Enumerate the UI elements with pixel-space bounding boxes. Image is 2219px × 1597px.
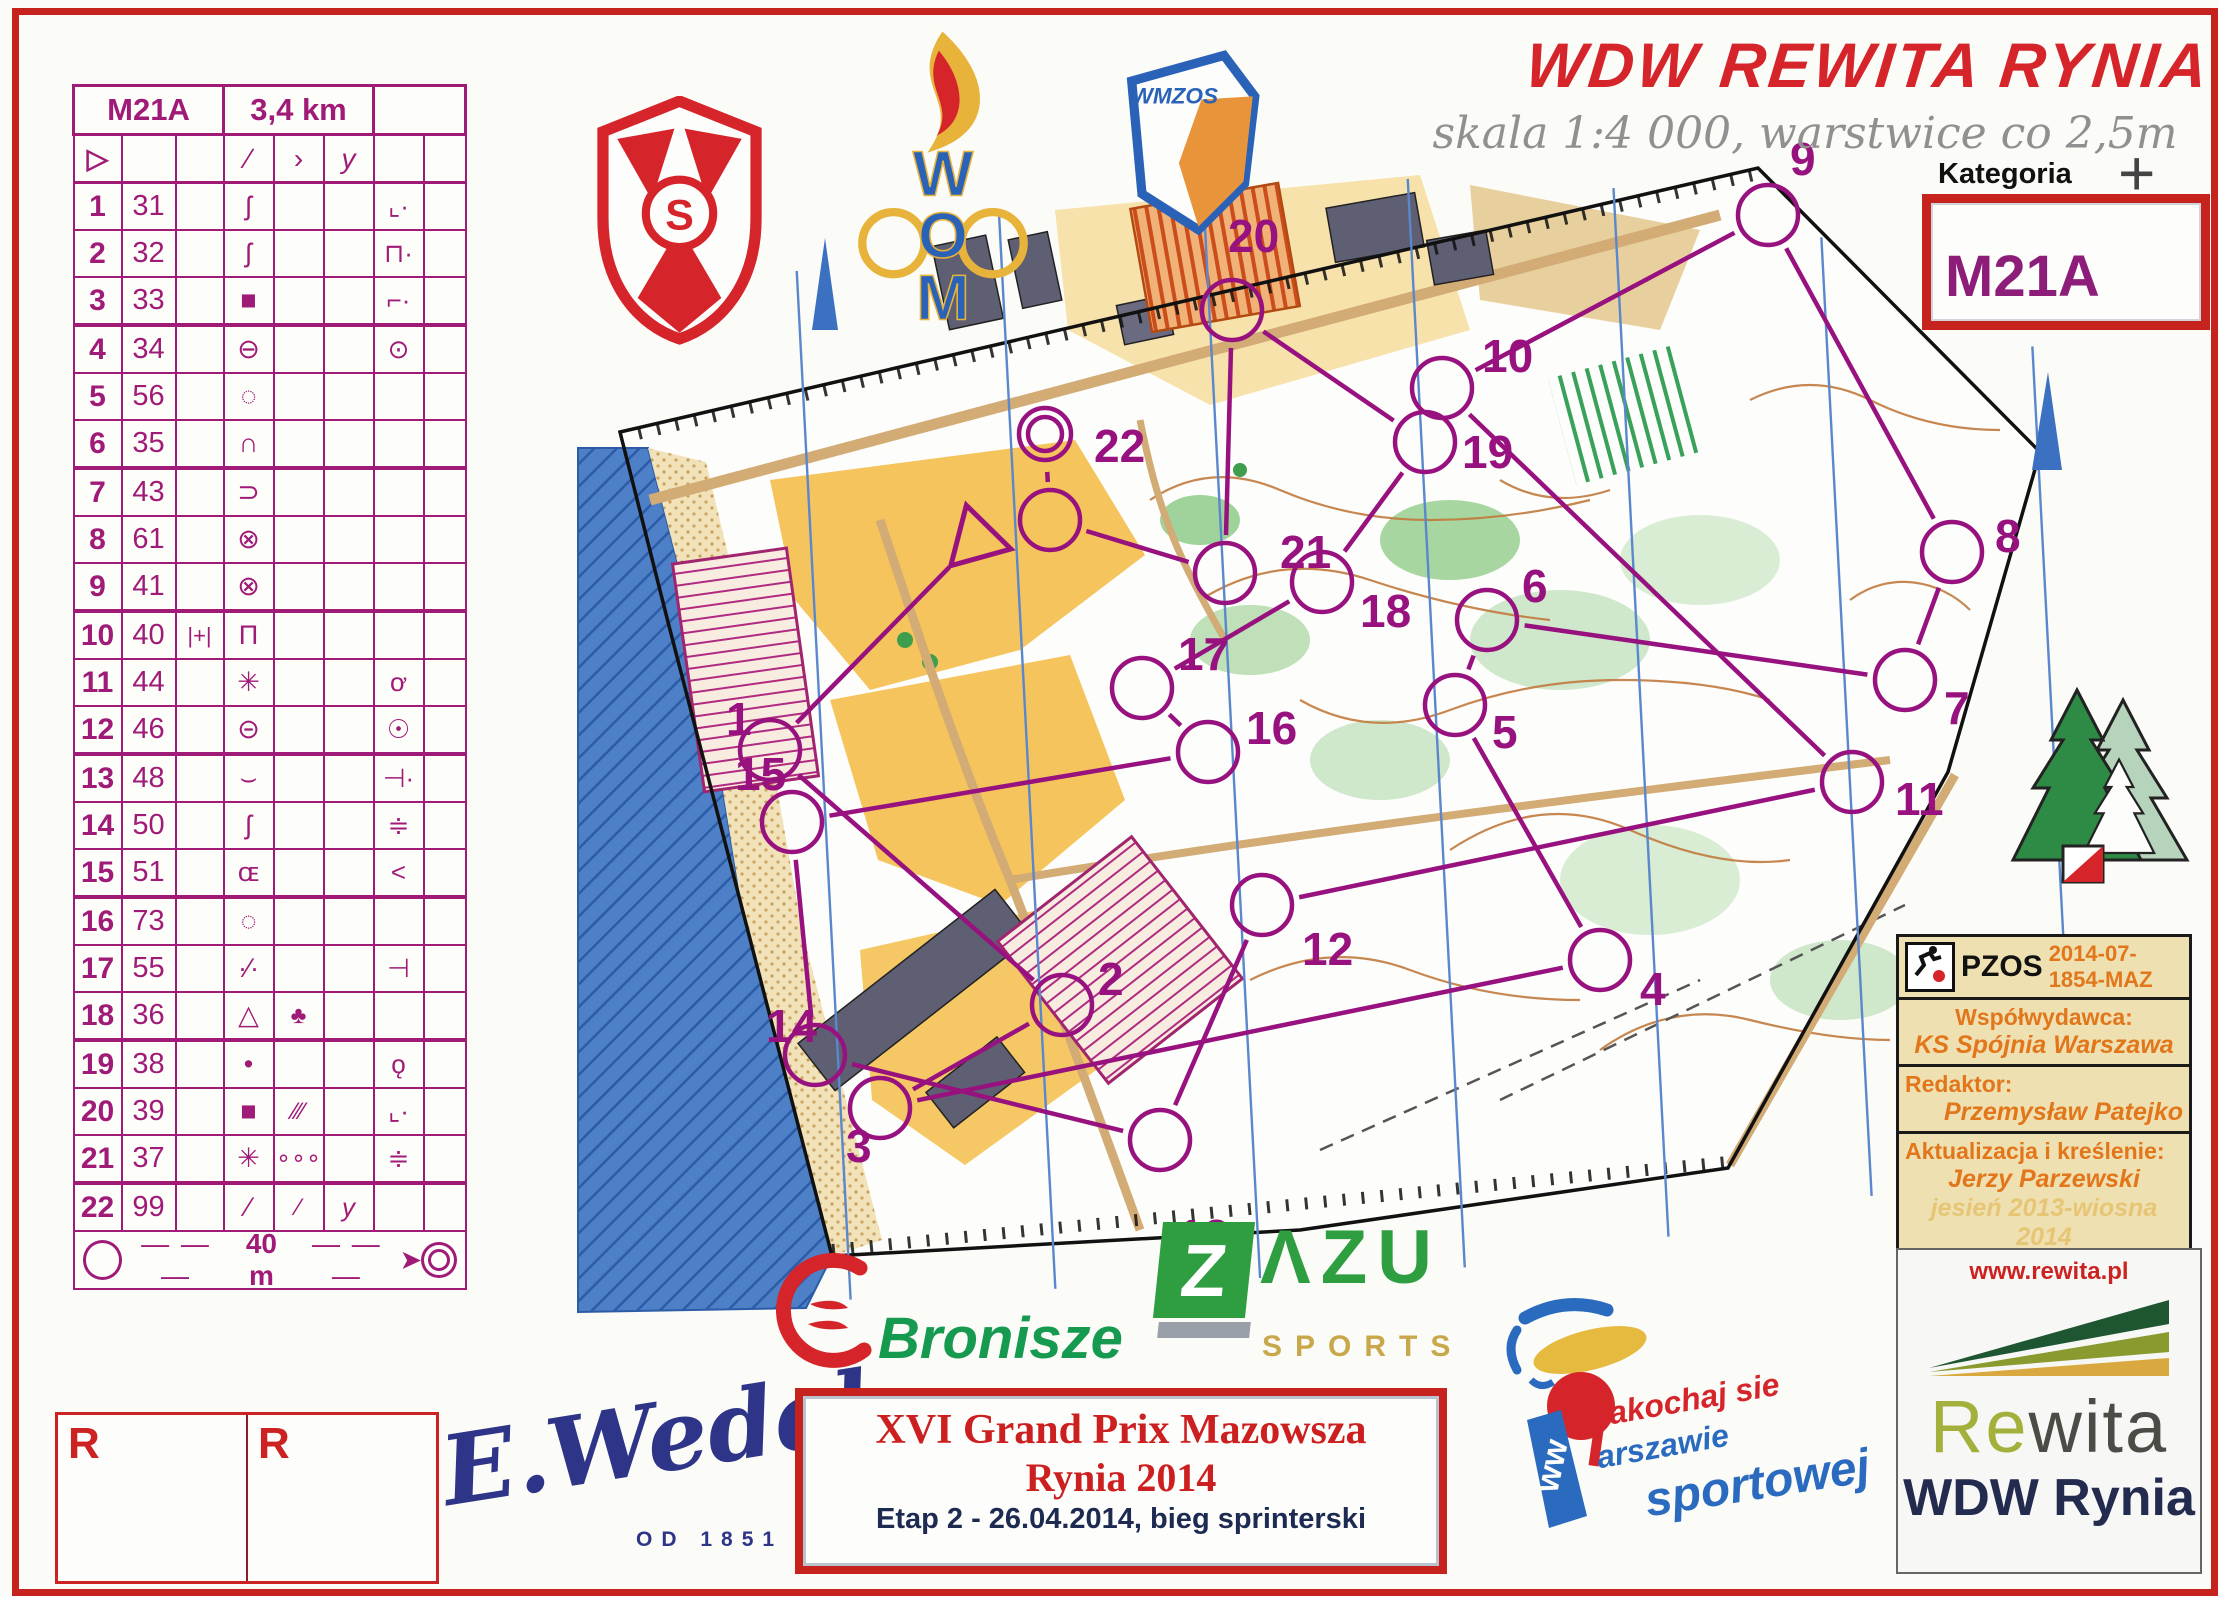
rewita-brand: Rewita	[1898, 1390, 2200, 1464]
control-code: 34	[122, 325, 176, 373]
rewita-wedges-icon	[1924, 1290, 2174, 1388]
control-number-label: 12	[1302, 923, 1353, 975]
control-row: 1246⊝☉	[74, 706, 466, 754]
control-code: 38	[122, 1040, 176, 1088]
zazu-z-icon: Z	[1153, 1222, 1255, 1318]
appearance-symbol	[274, 659, 324, 706]
zazu-letters: ΛZU	[1260, 1222, 1442, 1294]
appearance-symbol: ∕∕∕	[274, 1088, 324, 1135]
dimensions-symbol	[324, 992, 374, 1040]
control-number: 5	[74, 373, 122, 420]
other-info-symbol	[424, 849, 466, 897]
update-date: jesień 2013-wiosna 2014	[1905, 1194, 2183, 1252]
control-code: 41	[122, 563, 176, 611]
control-row: 232ʃ⊓·	[74, 230, 466, 277]
flag-location-symbol: ⌐·	[374, 277, 424, 325]
flag-location-symbol: ⊓·	[374, 230, 424, 277]
appearance-symbol	[274, 563, 324, 611]
reserve-label-2: R	[258, 1419, 290, 1469]
which-feature-symbol	[176, 373, 224, 420]
map-registry-code: 2014-07-1854-MAZ	[2049, 941, 2183, 993]
dashed-line: — — —	[122, 1228, 230, 1292]
control-code: 31	[122, 183, 176, 231]
control-number: 16	[74, 897, 122, 945]
co-publisher-value: KS Spójnia Warszawa	[1905, 1031, 2183, 1060]
zazu-sports-logo: Z ΛZU SPORTS	[1158, 1222, 1458, 1364]
control-code: 39	[122, 1088, 176, 1135]
other-info-symbol	[424, 1183, 466, 1231]
appearance-symbol	[274, 183, 324, 231]
bronisze-label: Bronisze	[878, 1305, 1123, 1372]
control-code: 36	[122, 992, 176, 1040]
control-code: 43	[122, 468, 176, 516]
control-row: 743⊃	[74, 468, 466, 516]
control-description-table: M21A3,4 km▷∕›y131ʃ⌞·232ʃ⊓·333■⌐·434⊖⊙556…	[72, 84, 467, 1290]
control-code: 44	[122, 659, 176, 706]
control-circle-icon	[83, 1240, 123, 1280]
map-title: WDW REWITA RYNIA	[1476, 30, 2214, 102]
control-number-label: 19	[1462, 426, 1513, 478]
appearance-symbol	[274, 1040, 324, 1088]
control-number: 21	[74, 1135, 122, 1183]
flag-location-symbol: ơ	[374, 659, 424, 706]
control-row: 1755∙∕∙⊣	[74, 945, 466, 992]
appearance-symbol	[274, 802, 324, 849]
control-number: 20	[74, 1088, 122, 1135]
other-info-symbol	[424, 945, 466, 992]
control-number: 4	[74, 325, 122, 373]
other-info-symbol	[424, 516, 466, 563]
flag-location-symbol: ≑	[374, 802, 424, 849]
control-number: 9	[74, 563, 122, 611]
desc-cell	[122, 135, 176, 183]
svg-text:M: M	[916, 262, 969, 328]
pzos-runner-icon	[1905, 942, 1955, 992]
dimensions-symbol	[324, 802, 374, 849]
appearance-symbol	[274, 706, 324, 754]
dimensions-symbol	[324, 325, 374, 373]
control-number-label: 21	[1280, 526, 1331, 578]
appearance-symbol	[274, 945, 324, 992]
control-code: 55	[122, 945, 176, 992]
control-row: 556◌	[74, 373, 466, 420]
control-row: 941⊗	[74, 563, 466, 611]
which-feature-symbol	[176, 897, 224, 945]
feature-symbol: ◌	[224, 373, 274, 420]
course-leg	[1047, 472, 1048, 482]
control-number: 6	[74, 420, 122, 468]
control-code: 37	[122, 1135, 176, 1183]
control-row: 2039■∕∕∕⌞·	[74, 1088, 466, 1135]
appearance-symbol	[274, 897, 324, 945]
control-code: 48	[122, 754, 176, 802]
appearance-symbol	[274, 468, 324, 516]
appearance-symbol: ♣	[274, 992, 324, 1040]
control-number: 10	[74, 611, 122, 659]
feature-symbol: ⌣	[224, 754, 274, 802]
arrow-icon: ➤	[401, 1246, 421, 1275]
control-number-label: 3	[846, 1120, 872, 1172]
feature-symbol: ⊖	[224, 325, 274, 373]
finish-scale-row: — — —40 m— — —➤	[74, 1231, 466, 1289]
rewita-url: www.rewita.pl	[1898, 1258, 2200, 1286]
dimensions-symbol	[324, 897, 374, 945]
north-arrow	[812, 238, 838, 330]
event-line3: Etap 2 - 26.04.2014, bieg sprinterski	[803, 1503, 1439, 1536]
feature-symbol: ∙∕∙	[224, 945, 274, 992]
wmzos-label: WMZOS	[1132, 84, 1218, 109]
control-flag-icon	[2063, 846, 2103, 882]
desc-cell: ›	[274, 135, 324, 183]
which-feature-symbol	[176, 706, 224, 754]
dimensions-symbol	[324, 468, 374, 516]
other-info-symbol	[424, 1040, 466, 1088]
control-code: 73	[122, 897, 176, 945]
control-code: 32	[122, 230, 176, 277]
feature-symbol: △	[224, 992, 274, 1040]
flag-location-symbol: <	[374, 849, 424, 897]
which-feature-symbol	[176, 754, 224, 802]
dimensions-symbol	[324, 1088, 374, 1135]
category-value: M21A	[1945, 243, 2100, 310]
dimensions-symbol: y	[324, 1183, 374, 1231]
feature-symbol: •	[224, 1040, 274, 1088]
control-number: 13	[74, 754, 122, 802]
control-number: 19	[74, 1040, 122, 1088]
spacing-value: 40 m	[230, 1228, 293, 1292]
which-feature-symbol	[176, 1135, 224, 1183]
control-row: 2137✳∘∘∘≑	[74, 1135, 466, 1183]
dimensions-symbol	[324, 420, 374, 468]
control-code: 33	[122, 277, 176, 325]
control-number-label: 8	[1995, 510, 2021, 562]
which-feature-symbol	[176, 849, 224, 897]
control-row: 1938•ǫ	[74, 1040, 466, 1088]
dimensions-symbol	[324, 945, 374, 992]
which-feature-symbol	[176, 945, 224, 992]
control-row: 1144✳ơ	[74, 659, 466, 706]
pzos-label: PZOS	[1961, 950, 2043, 984]
feature-symbol: ⊝	[224, 706, 274, 754]
feature-symbol: ✳	[224, 659, 274, 706]
control-row: 1551ɶ<	[74, 849, 466, 897]
appearance-symbol: ⁄	[274, 1183, 324, 1231]
other-info-symbol	[424, 897, 466, 945]
dimensions-symbol	[324, 1040, 374, 1088]
flag-location-symbol	[374, 897, 424, 945]
fir-tree-logo	[2013, 690, 2187, 882]
which-feature-symbol	[176, 563, 224, 611]
appearance-symbol: ∘∘∘	[274, 1135, 324, 1183]
other-info-symbol	[424, 611, 466, 659]
flag-location-symbol	[374, 992, 424, 1040]
control-number-label: 14	[766, 1000, 818, 1052]
flag-location-symbol	[374, 468, 424, 516]
appearance-symbol	[274, 277, 324, 325]
flag-location-symbol: ≑	[374, 1135, 424, 1183]
which-feature-symbol	[176, 183, 224, 231]
which-feature-symbol	[176, 802, 224, 849]
control-code: 51	[122, 849, 176, 897]
dimensions-symbol	[324, 230, 374, 277]
flag-location-symbol	[374, 563, 424, 611]
dimensions-symbol	[324, 659, 374, 706]
event-line2: Rynia 2014	[803, 1454, 1439, 1501]
control-number-label: 6	[1522, 560, 1548, 612]
control-number: 3	[74, 277, 122, 325]
category-label: Kategoria	[1938, 158, 2072, 191]
flag-location-symbol: ⌞·	[374, 183, 424, 231]
which-feature-symbol	[176, 659, 224, 706]
control-row: 1673◌	[74, 897, 466, 945]
control-number: 17	[74, 945, 122, 992]
wom-torch-logo: W O M	[838, 28, 1048, 328]
reserve-cell-2: R	[248, 1415, 436, 1581]
which-feature-symbol: |+|	[176, 611, 224, 659]
which-feature-symbol	[176, 420, 224, 468]
vegetation	[1380, 500, 1520, 580]
reserve-boxes: R R	[55, 1412, 439, 1584]
desc-cell	[374, 86, 466, 135]
control-number-label: 2	[1098, 953, 1124, 1005]
dimensions-symbol	[324, 611, 374, 659]
map-scale-subtitle: skala 1:4 000, warstwice co 2,5m	[1400, 108, 2210, 159]
dimensions-symbol	[324, 277, 374, 325]
which-feature-symbol	[176, 1040, 224, 1088]
feature-symbol: ʃ	[224, 183, 274, 231]
control-number: 7	[74, 468, 122, 516]
feature-symbol: ʃ	[224, 802, 274, 849]
control-code: 46	[122, 706, 176, 754]
reserve-cell-1: R	[58, 1415, 248, 1581]
control-row: 2299∕⁄y	[74, 1183, 466, 1231]
dashed-line: — — —	[293, 1228, 401, 1292]
desc-cell: y	[324, 135, 374, 183]
which-feature-symbol	[176, 325, 224, 373]
flag-location-symbol	[374, 373, 424, 420]
which-feature-symbol	[176, 992, 224, 1040]
rewita-brand-wita: wita	[2029, 1385, 2169, 1468]
other-info-symbol	[424, 754, 466, 802]
wmzos-badge: WMZOS	[1098, 40, 1268, 240]
desc-cell: ∕	[224, 135, 274, 183]
control-row: 1348⌣⊣·	[74, 754, 466, 802]
zazu-sports-label: SPORTS	[1262, 1330, 1458, 1364]
control-number-label: 7	[1944, 682, 1970, 734]
reserve-label-1: R	[68, 1419, 100, 1469]
other-info-symbol	[424, 468, 466, 516]
update-label: Aktualizacja i kreślenie:	[1905, 1138, 2183, 1165]
wedel-since: OD 1851	[636, 1528, 783, 1552]
dimensions-symbol	[324, 1135, 374, 1183]
control-number: 12	[74, 706, 122, 754]
desc-cell	[374, 135, 424, 183]
dimensions-symbol	[324, 754, 374, 802]
which-feature-symbol	[176, 468, 224, 516]
flag-location-symbol: ⊙	[374, 325, 424, 373]
control-row: 333■⌐·	[74, 277, 466, 325]
other-info-symbol	[424, 563, 466, 611]
event-line1: XVI Grand Prix Mazowsza	[803, 1406, 1439, 1454]
feature-symbol: Π	[224, 611, 274, 659]
dimensions-symbol	[324, 373, 374, 420]
other-info-symbol	[424, 659, 466, 706]
desc-cell	[424, 135, 466, 183]
category-box: M21A	[1922, 194, 2210, 330]
finish-circle-icon	[421, 1242, 457, 1278]
control-number-label: 5	[1492, 706, 1518, 758]
vegetation	[1620, 515, 1780, 605]
which-feature-symbol	[176, 277, 224, 325]
appearance-symbol	[274, 849, 324, 897]
appearance-symbol	[274, 754, 324, 802]
rewita-site-name: WDW Rynia	[1898, 1468, 2200, 1528]
control-number: 22	[74, 1183, 122, 1231]
feature-symbol: ɶ	[224, 849, 274, 897]
start-symbol: ▷	[74, 135, 122, 183]
editor-value: Przemysław Patejko	[1905, 1098, 2183, 1127]
control-code: 35	[122, 420, 176, 468]
other-info-symbol	[424, 183, 466, 231]
feature-symbol: ⊗	[224, 516, 274, 563]
flag-location-symbol	[374, 516, 424, 563]
flag-location-symbol	[374, 611, 424, 659]
appearance-symbol	[274, 516, 324, 563]
course-class: M21A	[74, 86, 224, 135]
event-title-box: XVI Grand Prix Mazowsza Rynia 2014 Etap …	[795, 1388, 1447, 1574]
control-code: 40	[122, 611, 176, 659]
control-row: 1450ʃ≑	[74, 802, 466, 849]
control-code: 99	[122, 1183, 176, 1231]
dimensions-symbol	[324, 516, 374, 563]
flag-location-symbol: ⌞·	[374, 1088, 424, 1135]
desc-cell	[176, 135, 224, 183]
dimensions-symbol	[324, 849, 374, 897]
control-row: 434⊖⊙	[74, 325, 466, 373]
other-info-symbol	[424, 373, 466, 420]
other-info-symbol	[424, 277, 466, 325]
which-feature-symbol	[176, 1183, 224, 1231]
map-sheet: 12345678910111213141516171819202122 M21A…	[0, 0, 2219, 1597]
flag-location-symbol: ǫ	[374, 1040, 424, 1088]
control-number-label: 4	[1640, 963, 1666, 1015]
flag-location-symbol	[374, 420, 424, 468]
control-row: 1836△♣	[74, 992, 466, 1040]
control-number: 15	[74, 849, 122, 897]
other-info-symbol	[424, 230, 466, 277]
other-info-symbol	[424, 1088, 466, 1135]
feature-symbol: ʃ	[224, 230, 274, 277]
flag-location-symbol: ⊣	[374, 945, 424, 992]
editor-label: Redaktor:	[1905, 1071, 2183, 1098]
zazu-bar	[1157, 1322, 1251, 1338]
appearance-symbol	[274, 325, 324, 373]
control-number-label: 17	[1178, 628, 1229, 680]
other-info-symbol	[424, 325, 466, 373]
feature-symbol: ∩	[224, 420, 274, 468]
tree-dot	[897, 632, 913, 648]
control-number: 1	[74, 183, 122, 231]
feature-symbol: ✳	[224, 1135, 274, 1183]
control-row: 1040|+|Π	[74, 611, 466, 659]
control-number: 8	[74, 516, 122, 563]
feature-symbol: ⊃	[224, 468, 274, 516]
appearance-symbol	[274, 230, 324, 277]
control-code: 50	[122, 802, 176, 849]
control-row: 861⊗	[74, 516, 466, 563]
feature-symbol: ∕	[224, 1183, 274, 1231]
control-number-label: 18	[1360, 585, 1411, 637]
feature-symbol: ■	[224, 277, 274, 325]
other-info-symbol	[424, 1135, 466, 1183]
control-number: 14	[74, 802, 122, 849]
control-number: 18	[74, 992, 122, 1040]
control-code: 56	[122, 373, 176, 420]
appearance-symbol	[274, 611, 324, 659]
flag-location-symbol	[374, 1183, 424, 1231]
control-number-label: 16	[1246, 702, 1297, 754]
other-info-symbol	[424, 802, 466, 849]
feature-symbol: ◌	[224, 897, 274, 945]
other-info-symbol	[424, 992, 466, 1040]
control-number: 11	[74, 659, 122, 706]
control-description-sheet: M21A3,4 km▷∕›y131ʃ⌞·232ʃ⊓·333■⌐·434⊖⊙556…	[72, 84, 467, 1290]
which-feature-symbol	[176, 516, 224, 563]
flag-location-symbol: ⊣·	[374, 754, 424, 802]
control-number-label: 15	[735, 748, 786, 800]
rewita-logo-box: www.rewita.pl Rewita WDW Rynia	[1896, 1248, 2202, 1574]
control-row: 131ʃ⌞·	[74, 183, 466, 231]
control-number-label: 22	[1094, 420, 1145, 472]
dimensions-symbol	[324, 706, 374, 754]
appearance-symbol	[274, 420, 324, 468]
control-number-label: 10	[1482, 330, 1533, 382]
control-number-label: 1	[726, 693, 752, 745]
control-code: 61	[122, 516, 176, 563]
tree-dot	[1233, 463, 1247, 477]
co-publisher-label: Współwydawca:	[1905, 1004, 2183, 1031]
feature-symbol: ⊗	[224, 563, 274, 611]
dimensions-symbol	[324, 563, 374, 611]
feature-symbol: ■	[224, 1088, 274, 1135]
control-number: 2	[74, 230, 122, 277]
control-row: 635∩	[74, 420, 466, 468]
other-info-symbol	[424, 706, 466, 754]
flag-location-symbol: ☉	[374, 706, 424, 754]
which-feature-symbol	[176, 230, 224, 277]
which-feature-symbol	[176, 1088, 224, 1135]
spojnia-letter: S	[665, 192, 694, 240]
update-value: Jerzy Parzewski	[1905, 1165, 2183, 1194]
appearance-symbol	[274, 373, 324, 420]
course-length: 3,4 km	[224, 86, 374, 135]
rewita-brand-re: Re	[1930, 1385, 2029, 1468]
other-info-symbol	[424, 420, 466, 468]
control-number-label: 11	[1895, 773, 1944, 825]
spojnia-shield-logo: S	[592, 96, 767, 346]
vegetation	[1310, 720, 1450, 800]
dimensions-symbol	[324, 183, 374, 231]
